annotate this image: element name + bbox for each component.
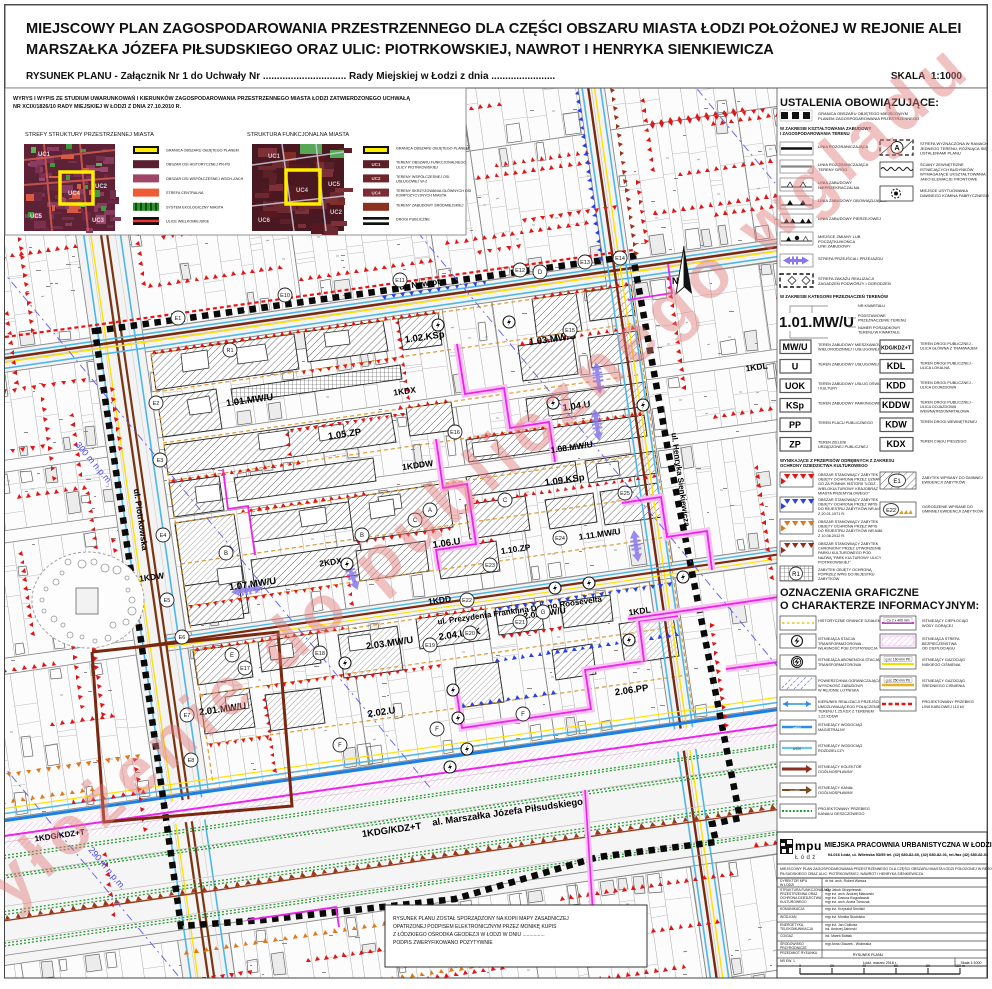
svg-text:UC1: UC1 [268,154,281,160]
svg-text:E19: E19 [425,643,435,649]
svg-text:ROZDZIELCZY: ROZDZIELCZY [818,749,845,753]
svg-text:WŁASNOŚĆ PGE DYSTRYBUCJA: WŁASNOŚĆ PGE DYSTRYBUCJA [818,646,878,651]
svg-text:BEZPIECZEŃSTWA: BEZPIECZEŃSTWA [922,642,957,646]
svg-text:ZAGADZEŃ PODWÓRZY I OGRODZEŃ: ZAGADZEŃ PODWÓRZY I OGRODZEŃ [818,281,891,286]
svg-text:94-016 Łódź, ul. Wileńska 53/5: 94-016 Łódź, ul. Wileńska 53/55 tel. (42… [828,852,989,857]
svg-text:ULICA DOJAZDOWA: ULICA DOJAZDOWA [920,405,957,409]
svg-text:KOMUNIKACJA: KOMUNIKACJA [780,907,805,911]
svg-text:UC1: UC1 [371,162,380,167]
svg-text:DO REJESTRU ZABYTKÓW NR A/86: DO REJESTRU ZABYTKÓW NR A/86 [818,528,882,533]
svg-text:TEREN CIĄGU PIESZEGO: TEREN CIĄGU PIESZEGO [920,440,966,444]
svg-text:KANAŁU DESZCZOWEGO: KANAŁU DESZCZOWEGO [818,812,864,816]
svg-text:E20: E20 [465,631,475,637]
svg-text:E1: E1 [175,316,182,322]
svg-text:KOMPOZYCYJNYCH MIASTA: KOMPOZYCYJNYCH MIASTA [396,194,447,198]
svg-text:MIASTA PRZEMYSŁOWEGO": MIASTA PRZEMYSŁOWEGO" [818,491,870,495]
svg-text:POPRZEZ WPIS DO REJESTRU: POPRZEZ WPIS DO REJESTRU [818,573,875,577]
svg-text:NISKIEGO CIŚNIENIA: NISKIEGO CIŚNIENIA [922,662,961,667]
svg-text:TERENY ZABUDOWY ŚRÓDMIEJSKIEJ: TERENY ZABUDOWY ŚRÓDMIEJSKIEJ [396,202,464,207]
svg-text:O CHARAKTERZE INFORMACYJNYM:: O CHARAKTERZE INFORMACYJNYM: [780,600,979,612]
svg-text:UC1: UC1 [38,152,51,158]
svg-text:WYSOKOŚĆ ZABUDOWY: WYSOKOŚĆ ZABUDOWY [818,683,864,688]
svg-text:D: D [538,270,543,276]
svg-text:E5: E5 [164,598,171,604]
svg-text:E25: E25 [620,491,630,497]
svg-text:ZP: ZP [789,440,801,450]
svg-text:UC4: UC4 [68,191,81,197]
svg-text:PRZEZNACZENIE TERENU: PRZEZNACZENIE TERENU [858,319,906,323]
svg-text:UOK: UOK [785,381,806,391]
svg-text:TERENU W KWARTALE: TERENU W KWARTALE [858,331,900,335]
svg-text:ISTNIEJĄCA STREFA: ISTNIEJĄCA STREFA [922,637,960,641]
svg-text:dr inż. arch. Robert Warsza: dr inż. arch. Robert Warsza [825,879,866,883]
svg-text:ZABYTEK WPISANY DO GMINNEJ: ZABYTEK WPISANY DO GMINNEJ [922,476,983,480]
svg-text:LINII KABLOWEJ 110 kV: LINII KABLOWEJ 110 kV [922,705,965,709]
svg-text:POWIERZCHNIA OGRANICZAJĄCA: POWIERZCHNIA OGRANICZAJĄCA [818,679,881,683]
svg-text:RYSUNEK PLANU ZOSTAŁ SPORZĄDZO: RYSUNEK PLANU ZOSTAŁ SPORZĄDZONY NA KOPI… [393,916,569,922]
svg-text:g nc 160 mm PE: g nc 160 mm PE [885,658,911,662]
svg-text:I KULTURY: I KULTURY [818,387,838,391]
svg-text:TELEKOMUNIKACJA: TELEKOMUNIKACJA [780,927,814,931]
svg-text:OBJĘTY OCHRONĄ PRZEZ WPIS: OBJĘTY OCHRONĄ PRZEZ WPIS [818,525,878,529]
svg-text:GMINNEJ EWIDENCJI ZABYTKÓW: GMINNEJ EWIDENCJI ZABYTKÓW [922,509,984,514]
svg-text:TEREN ZABUDOWY USŁUGOWEJ: TEREN ZABUDOWY USŁUGOWEJ [818,363,879,367]
svg-text:USŁUGOWEJ W-Z: USŁUGOWEJ W-Z [396,180,428,184]
svg-text:OBSZAR OSI HISTORYCZNEJ PN-PD: OBSZAR OSI HISTORYCZNEJ PN-PD [166,163,231,167]
svg-text:OBJĘTY OCHRONĄ PRZEZ UZNANIE: OBJĘTY OCHRONĄ PRZEZ UZNANIE [818,478,885,482]
svg-text:TEREN ZABUDOWY USŁUG OŚWIATY: TEREN ZABUDOWY USŁUG OŚWIATY [818,381,887,386]
svg-text:w100: w100 [793,747,801,751]
svg-text:W ŁODZI: W ŁODZI [780,883,794,887]
svg-text:DROGI PUBLICZNE: DROGI PUBLICZNE [396,218,430,222]
svg-text:GO ZA POMNIK HISTORII "ŁÓDŹ -: GO ZA POMNIK HISTORII "ŁÓDŹ - [818,481,879,486]
svg-text:E6: E6 [179,635,186,641]
svg-text:STREFA PRZEJŚCIA I PRZEJAZDU: STREFA PRZEJŚCIA I PRZEJAZDU [818,256,883,261]
svg-text:LINII ZABUDOWY: LINII ZABUDOWY [818,244,851,249]
svg-text:OD CIEPŁOCIĄGU: OD CIEPŁOCIĄGU [922,647,955,651]
svg-text:E22: E22 [462,598,472,604]
svg-text:20: 20 [830,964,834,968]
svg-text:URZĄDZONEJ PUBLICZNEJ: URZĄDZONEJ PUBLICZNEJ [818,445,868,449]
svg-text:TEREN ZIELENI: TEREN ZIELENI [818,441,846,445]
svg-text:ZABYTEK OBJĘTY OCHRONĄ: ZABYTEK OBJĘTY OCHRONĄ [818,568,872,572]
svg-text:PRZYRODNICZE: PRZYRODNICZE [780,946,807,950]
svg-text:WODY GORĄCEJ: WODY GORĄCEJ [922,624,953,628]
svg-text:80: 80 [926,964,930,968]
svg-text:E10: E10 [280,293,290,299]
svg-text:mpu: mpu [795,839,822,853]
svg-text:TERENY OBSZARU FUNKCJONALNEGO: TERENY OBSZARU FUNKCJONALNEGO [396,161,466,165]
svg-text:UC2: UC2 [371,176,380,181]
svg-text:OZNACZENIA GRAFICZNE: OZNACZENIA GRAFICZNE [780,587,919,599]
svg-text:OGÓLNOSPŁAWNY: OGÓLNOSPŁAWNY [818,790,854,795]
svg-text:ULICA GŁÓWNA Z TRAMWAJEM: ULICA GŁÓWNA Z TRAMWAJEM [920,346,977,351]
svg-text:PARKU KULTUROWEGO POD: PARKU KULTUROWEGO POD [818,551,871,555]
svg-text:TEREN ZABUDOWY PARKINGOWEJ: TEREN ZABUDOWY PARKINGOWEJ [818,402,883,406]
svg-text:ISTNIEJĄCA STACJA: ISTNIEJĄCA STACJA [818,637,856,641]
svg-text:PRZEDMIOT RYSUNKU: PRZEDMIOT RYSUNKU [780,951,818,955]
svg-text:WOD-KAN: WOD-KAN [780,915,797,919]
svg-text:ULICY PIOTRKOWSKIEJ: ULICY PIOTRKOWSKIEJ [396,165,438,169]
svg-text:E4: E4 [160,533,167,539]
svg-text:PROJEKTOWANY PRZEBIEG: PROJEKTOWANY PRZEBIEG [922,700,974,704]
svg-text:TERENY SKRZYŻOWANIA GŁÓWNYCH O: TERENY SKRZYŻOWANIA GŁÓWNYCH OSI [396,188,471,193]
svg-text:OBSZAR STANOWIĄCY ZABYTEK: OBSZAR STANOWIĄCY ZABYTEK [818,542,879,546]
svg-text:PODPIS ZWERYFIKOWANO POZYTYWNI: PODPIS ZWERYFIKOWANO POZYTYWNIE [393,940,493,946]
svg-text:100 m: 100 m [955,964,965,968]
svg-text:U: U [792,362,799,372]
svg-text:ISTNIEJĄCA ABONENCKA STACJA: ISTNIEJĄCA ABONENCKA STACJA [818,658,880,662]
svg-text:UC6: UC6 [258,218,271,224]
svg-text:F: F [521,712,525,718]
svg-text:ISTNIEJĄCY GAZOCIĄG: ISTNIEJĄCY GAZOCIĄG [922,658,965,662]
svg-text:E24: E24 [555,536,565,542]
svg-text:ULICA DOJAZDOWA: ULICA DOJAZDOWA [920,386,957,390]
svg-text:Co 2 x 400 mm: Co 2 x 400 mm [887,619,910,623]
svg-text:B: B [224,551,228,557]
svg-text:PIOTRKOWSKIEJ": PIOTRKOWSKIEJ" [818,560,851,564]
svg-text:ISTNIEJĄCY WODOCIĄG: ISTNIEJĄCY WODOCIĄG [818,723,862,727]
svg-text:MIEJSCOWY PLAN ZAGOSPODAROWANI: MIEJSCOWY PLAN ZAGOSPODAROWANIA PRZESTRZ… [780,866,992,871]
svg-text:Z ŁÓDZKIEGO OŚRODKA GEODEZJI W: Z ŁÓDZKIEGO OŚRODKA GEODEZJI W ŁODZI W D… [393,930,545,938]
svg-text:STREFY STRUKTURY PRZESTRZENNEJ: STREFY STRUKTURY PRZESTRZENNEJ MIASTA [25,132,154,138]
svg-text:WYRYS I WYPIS ZE STUDIUM UWARU: WYRYS I WYPIS ZE STUDIUM UWARUNKOWAŃ I K… [13,94,410,102]
svg-text:TEREN PLACU PUBLICZNEGO: TEREN PLACU PUBLICZNEGO [818,421,873,425]
svg-text:E15: E15 [565,328,575,334]
svg-text:MIEJSCOWY PLAN ZAGOSPODAROWANI: MIEJSCOWY PLAN ZAGOSPODAROWANIA PRZESTRZ… [26,19,961,37]
svg-text:KDL: KDL [887,361,906,371]
svg-text:KIERUNEK REALIZACJI PRZEJŚCIA: KIERUNEK REALIZACJI PRZEJŚCIA [818,699,882,704]
svg-text:OGÓLNOSPŁAWNY: OGÓLNOSPŁAWNY [818,769,854,774]
svg-text:0: 0 [799,964,801,968]
svg-text:F: F [338,743,342,749]
svg-text:ISTNIEJĄCY KANAŁ: ISTNIEJĄCY KANAŁ [818,786,853,790]
svg-text:OPATRZONEJ PODPISEM ELEKTRONIC: OPATRZONEJ PODPISEM ELEKTRONICZNYM PRZEZ… [393,924,557,930]
svg-text:NR EW. 1: NR EW. 1 [780,959,795,963]
svg-text:OBSZAR OSI WSPÓŁCZESNEJ WSCH-Z: OBSZAR OSI WSPÓŁCZESNEJ WSCH-ZACH [166,176,244,181]
svg-text:E22: E22 [886,508,896,514]
svg-text:GRANICA OBSZARU OBJĘTEGO PLANE: GRANICA OBSZARU OBJĘTEGO PLANEM [166,149,239,153]
svg-text:PODSTAWOWE: PODSTAWOWE [858,314,886,318]
svg-text:OBSZAR STANOWIĄCY ZABYTEK: OBSZAR STANOWIĄCY ZABYTEK [818,520,879,524]
svg-text:CHRONIONY PRZEZ UTWORZENIE: CHRONIONY PRZEZ UTWORZENIE [818,547,882,551]
svg-text:UMOŻLIWIAJĄCEGO POŁĄCZENIE: UMOŻLIWIAJĄCEGO POŁĄCZENIE [818,704,881,709]
svg-text:1.01.MW/U: 1.01.MW/U [779,314,854,331]
svg-text:PIŁSUDSKIEGO ORAZ ULIC: PIOTRK: PIŁSUDSKIEGO ORAZ ULIC: PIOTRKOWSKIEJ, N… [780,872,924,876]
svg-text:ULICA LOKALNA: ULICA LOKALNA [920,366,950,370]
svg-text:TEREN DROGI WEWNĘTRZNEJ: TEREN DROGI WEWNĘTRZNEJ [920,420,977,424]
svg-text:Łódź, marzec 2018 r.: Łódź, marzec 2018 r. [863,961,897,965]
svg-text:E23: E23 [485,563,495,569]
svg-text:NR KWARTAŁU: NR KWARTAŁU [858,304,885,308]
svg-text:inż. Marek Bubiak: inż. Marek Bubiak [825,934,852,938]
svg-text:UC4: UC4 [296,188,309,194]
svg-text:OCHRONY DZIEDZICTWA KULTUROWEG: OCHRONY DZIEDZICTWA KULTUROWEGO [780,463,868,468]
svg-text:WEWNĄTRZKWARTAŁOWA: WEWNĄTRZKWARTAŁOWA [920,410,970,414]
svg-text:KULTUROWEGO: KULTUROWEGO [780,900,807,904]
svg-text:MIEJSKA PRACOWNIA URBANISTYCZN: MIEJSKA PRACOWNIA URBANISTYCZNA W ŁODZI [824,842,991,849]
svg-text:mgr inż. Krzysztof Smólski: mgr inż. Krzysztof Smólski [825,907,865,911]
svg-text:ISTNIEJĄCY CIEPŁOCIĄG: ISTNIEJĄCY CIEPŁOCIĄG [922,619,968,623]
svg-text:mgr Anna Olaczek - Wołowska: mgr Anna Olaczek - Wołowska [825,942,871,946]
svg-text:E16: E16 [450,430,460,436]
svg-text:MW/U: MW/U [783,342,808,352]
svg-text:W REJONIE LOTNISKA: W REJONIE LOTNISKA [818,689,859,693]
svg-text:UC5: UC5 [30,214,43,220]
svg-text:60: 60 [894,964,898,968]
svg-text:UC2: UC2 [95,184,108,190]
svg-text:HISTORYCZNE GRANICE DZIAŁEK: HISTORYCZNE GRANICE DZIAŁEK [818,619,881,623]
svg-text:ULICE WIELKOMIEJSKIE: ULICE WIELKOMIEJSKIE [166,220,210,224]
svg-text:RYSUNEK PLANU: RYSUNEK PLANU [853,953,884,957]
svg-text:SYSTEM EKOLOGICZNY MIASTA: SYSTEM EKOLOGICZNY MIASTA [166,205,224,209]
svg-text:G: G [541,610,546,616]
svg-text:TEREN DROGI PUBLICZNEJ -: TEREN DROGI PUBLICZNEJ - [920,362,974,366]
svg-text:PROJEKTOWANY PRZEBIEG: PROJEKTOWANY PRZEBIEG [818,807,870,811]
svg-text:E1: E1 [893,479,901,485]
svg-text:DO REJESTRU ZABYTKÓW NR A/48: DO REJESTRU ZABYTKÓW NR A/48 [818,506,882,511]
svg-text:E21: E21 [515,620,525,626]
svg-text:STREFA CENTRALNA: STREFA CENTRALNA [166,191,204,195]
svg-text:R1: R1 [792,572,800,578]
svg-text:TEREN ZABUDOWY MIESZKANIOWEJ: TEREN ZABUDOWY MIESZKANIOWEJ [818,343,886,347]
svg-text:Z 20.01.1971 R.: Z 20.01.1971 R. [818,512,845,516]
svg-text:E13: E13 [580,260,590,266]
svg-text:UC2: UC2 [330,210,343,216]
svg-text:E11: E11 [395,278,404,284]
svg-text:JAKO ELEWACJE FRONTOWE: JAKO ELEWACJE FRONTOWE [920,176,978,181]
svg-text:NAZWĄ "PARK KULTUROWY ULICY: NAZWĄ "PARK KULTUROWY ULICY [818,556,882,560]
svg-text:TRANSFORMATOROWA -: TRANSFORMATOROWA - [818,642,864,646]
svg-text:TERENY WSPÓŁCZESNEJ OSI: TERENY WSPÓŁCZESNEJ OSI [396,174,449,179]
svg-text:ZABYTKÓW: ZABYTKÓW [818,576,840,581]
svg-text:E14: E14 [615,256,625,262]
svg-text:RYSUNEK PLANU - Załącznik Nr 1: RYSUNEK PLANU - Załącznik Nr 1 do Uchwał… [26,71,555,82]
svg-text:40: 40 [862,964,866,968]
svg-text:TEREN DROGI PUBLICZNEJ -: TEREN DROGI PUBLICZNEJ - [920,342,974,346]
svg-text:KSp: KSp [786,401,805,411]
svg-text:DAWNEGO KOMINA FABRYCZNEGO: DAWNEGO KOMINA FABRYCZNEGO [920,193,989,198]
svg-text:1.22.KDDW: 1.22.KDDW [818,714,838,718]
svg-text:OBJĘTY OCHRONĄ PRZEZ WPIS: OBJĘTY OCHRONĄ PRZEZ WPIS [818,503,878,507]
svg-text:KDDW: KDDW [882,400,910,410]
svg-text:E2: E2 [153,401,160,407]
svg-text:OBSZAR STANOWIĄCY ZABYTEK: OBSZAR STANOWIĄCY ZABYTEK [818,473,879,477]
svg-text:KDW: KDW [885,420,907,430]
svg-text:inż. Andrzej Zaborski: inż. Andrzej Zaborski [825,927,857,931]
svg-text:CO/GAZ: CO/GAZ [780,934,793,938]
svg-text:USTALENIAMI PLANU: USTALENIAMI PLANU [920,151,961,156]
svg-text:OGRODZENIE WPISANE DO: OGRODZENIE WPISANE DO [922,505,973,509]
svg-text:E12: E12 [515,268,525,274]
svg-text:UC4: UC4 [371,190,380,195]
svg-text:MARSZAŁKA JÓZEFA PIŁSUDSKIEGO: MARSZAŁKA JÓZEFA PIŁSUDSKIEGO ORAZ ULIC:… [26,40,774,58]
svg-text:g sc 250 mm PE: g sc 250 mm PE [886,679,912,683]
svg-text:mgr inż. arch. Aneta Tomczak: mgr inż. arch. Aneta Tomczak [825,900,870,904]
svg-text:TEREN DROGI PUBLICZNEJ -: TEREN DROGI PUBLICZNEJ - [920,381,974,385]
svg-text:NUMER PORZĄDKOWY: NUMER PORZĄDKOWY [858,326,901,330]
svg-text:GRANICA OBSZARU OBJĘTEGO PLANE: GRANICA OBSZARU OBJĘTEGO PLANEM [396,147,469,151]
svg-text:OBSZAR STANOWIĄCY ZABYTEK: OBSZAR STANOWIĄCY ZABYTEK [818,498,879,502]
svg-text:E3: E3 [157,458,164,464]
svg-text:NR XCIX/1826/10 RADY MIEJSKIEJ: NR XCIX/1826/10 RADY MIEJSKIEJ W ŁODZI Z… [13,104,182,110]
svg-text:ISTNIEJĄCY WODOCIĄG: ISTNIEJĄCY WODOCIĄG [818,744,862,748]
svg-text:KDG/KDZ+T: KDG/KDZ+T [881,346,912,352]
svg-text:TERENU 1.25.KDX Z TERENEM: TERENU 1.25.KDX Z TERENEM [818,710,874,714]
svg-text:WIELORODZINNEJ I USŁUGOWEJ: WIELORODZINNEJ I USŁUGOWEJ [818,348,879,352]
svg-text:TEREN DROGI PUBLICZNEJ -: TEREN DROGI PUBLICZNEJ - [920,401,974,405]
svg-text:UC3: UC3 [92,218,105,224]
svg-text:R1: R1 [226,348,233,354]
svg-text:Z 10.06.2012 R.: Z 10.06.2012 R. [818,534,845,538]
svg-text:mgr inż. Monika Stodolska: mgr inż. Monika Stodolska [825,915,865,919]
svg-text:ISTNIEJĄCY GAZOCIĄG: ISTNIEJĄCY GAZOCIĄG [922,679,965,683]
svg-text:w800: w800 [793,726,801,730]
svg-text:F: F [435,727,439,733]
svg-text:EWIDENCJI ZABYTKÓW: EWIDENCJI ZABYTKÓW [922,480,966,485]
svg-text:UC5: UC5 [328,182,341,188]
svg-text:ŚREDNIEGO CIŚNIENIA: ŚREDNIEGO CIŚNIENIA [922,683,965,688]
svg-text:TRANSFORMATOROWA: TRANSFORMATOROWA [818,663,862,667]
svg-text:ISTNIEJĄCY KOLEKTOR: ISTNIEJĄCY KOLEKTOR [818,765,862,769]
svg-text:MAGISTRALNY: MAGISTRALNY [818,728,846,732]
svg-text:W ZAKRESIE KATEGORII PRZEZNACZ: W ZAKRESIE KATEGORII PRZEZNACZEŃ TERENÓW [780,294,889,299]
svg-text:ko450: ko450 [790,789,800,793]
svg-text:KDX: KDX [886,439,905,449]
svg-text:Łódź: Łódź [795,855,818,861]
svg-text:STRUKTURA FUNKCJONALNA MIASTA: STRUKTURA FUNKCJONALNA MIASTA [247,132,349,138]
svg-text:KDD: KDD [886,381,906,391]
svg-text:PP: PP [789,420,801,430]
svg-text:WIELOKULTUROWY KRAJOBRAZ: WIELOKULTUROWY KRAJOBRAZ [818,487,879,491]
